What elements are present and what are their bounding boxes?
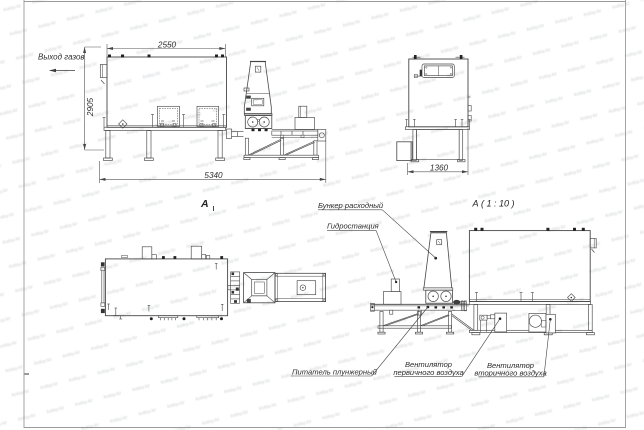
svg-text:Гидростанция: Гидростанция [327,222,379,231]
svg-text:1360: 1360 [430,163,449,172]
svg-text:2550: 2550 [157,41,177,50]
svg-text:Питатель плунжерный: Питатель плунжерный [292,368,378,377]
svg-text:А ( 1 : 10 ): А ( 1 : 10 ) [471,199,514,209]
svg-text:первичного воздуха: первичного воздуха [393,368,463,377]
svg-text:Выход газов: Выход газов [38,53,85,62]
svg-text:2905: 2905 [86,97,95,117]
svg-text:А: А [200,198,209,210]
svg-text:вторичного воздуха: вторичного воздуха [474,368,546,377]
svg-text:5340: 5340 [204,171,223,180]
svg-text:Бункер расходный: Бункер расходный [318,201,384,210]
